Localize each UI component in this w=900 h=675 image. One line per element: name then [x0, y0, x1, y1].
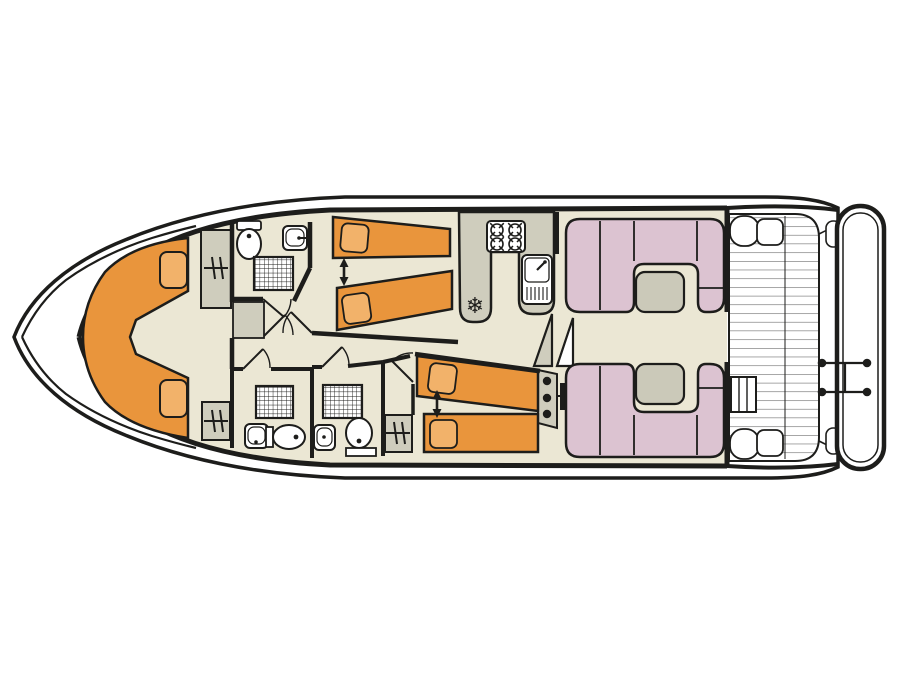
steering-wheel-icon	[560, 383, 565, 410]
shower-tray-icon	[254, 257, 293, 290]
washbasin-icon	[283, 226, 308, 250]
washbasin-icon	[245, 424, 268, 448]
toilet-icon	[237, 221, 261, 259]
boat-floor-plan: ❄	[0, 0, 900, 675]
toilet-icon	[266, 425, 305, 449]
hob-icon	[487, 221, 525, 252]
wardrobe-mid	[385, 415, 412, 452]
bed-cushion	[430, 420, 457, 448]
wardrobe-forward-bottom	[202, 402, 230, 440]
dinette-table-top	[636, 272, 684, 312]
swim-platform	[837, 206, 884, 469]
deck-slatted-floor	[729, 214, 819, 461]
bed-cushion	[340, 223, 369, 253]
wardrobe-forward-top	[201, 230, 231, 308]
shower-tray-icon	[256, 386, 293, 418]
sink-drainer-icon	[522, 255, 552, 304]
shower-tray-icon	[323, 385, 362, 418]
deck-bench-top	[730, 216, 783, 246]
bed-cushion	[341, 292, 372, 324]
berth-cushion-bottom	[160, 380, 187, 417]
deck-steps-icon	[731, 377, 756, 412]
bed-cushion	[427, 363, 457, 395]
washbasin-icon	[314, 425, 335, 450]
deck-bench-bottom	[730, 429, 783, 459]
boat-deck-plan-svg: ❄	[0, 0, 900, 675]
dinette-table-bottom	[636, 364, 684, 404]
berth-cushion-top	[160, 252, 187, 288]
fridge-snowflake-icon: ❄	[466, 294, 484, 319]
entry-step-locker	[233, 302, 264, 338]
